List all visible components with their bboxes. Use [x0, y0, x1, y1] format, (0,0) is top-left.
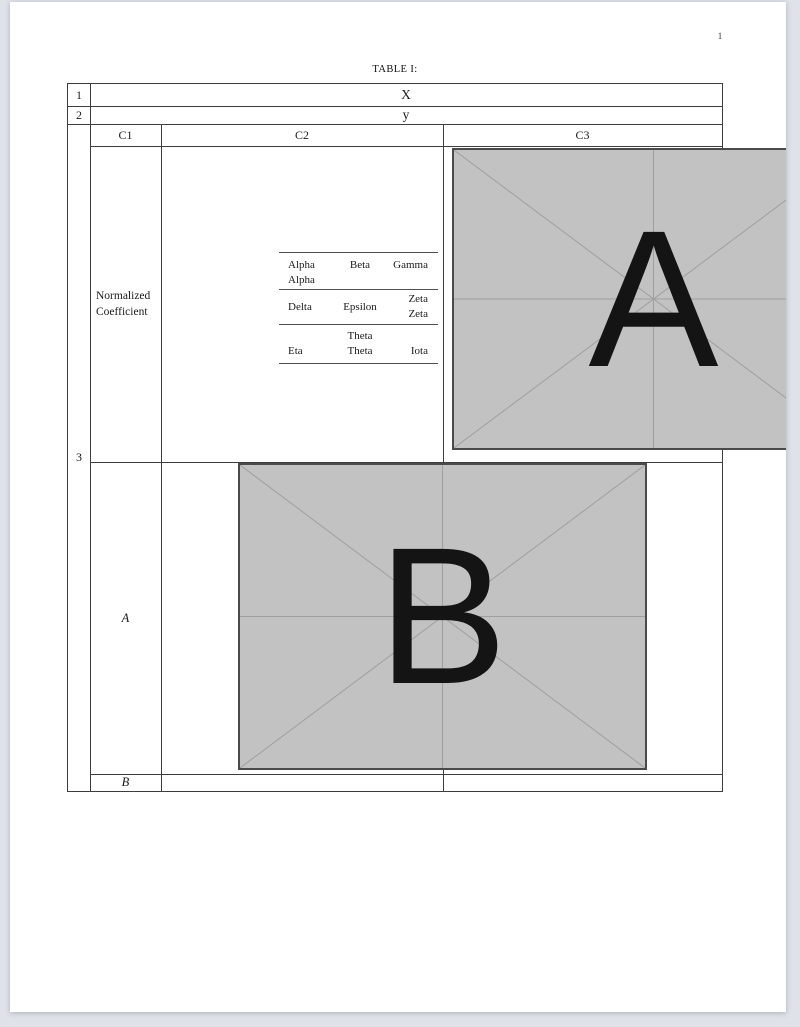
nested-table-row: Delta Epsilon Zeta Zeta	[279, 290, 438, 325]
nested-cell-line: Gamma	[393, 259, 428, 271]
header-c1: C1	[90, 124, 161, 146]
nested-cell-line: Theta	[331, 344, 389, 359]
page-number: 1	[710, 31, 730, 41]
nested-cell: Theta Theta	[331, 329, 389, 359]
row1-value-cell: X	[90, 84, 722, 106]
header-c2: C2	[161, 124, 443, 146]
nested-table: Alpha Alpha Beta Gamma Delta Epsil	[279, 252, 438, 364]
nested-cell-line: Delta	[288, 301, 312, 313]
row2-value-cell: y	[90, 106, 722, 124]
image-placeholder-b: B	[238, 463, 647, 770]
normalized-coefficient-line2: Coefficient	[96, 304, 148, 320]
nested-table-row: Alpha Alpha Beta Gamma	[279, 253, 438, 290]
nested-cell-line: Alpha	[288, 258, 331, 273]
nested-cell-line: Theta	[331, 329, 389, 344]
nested-cell-line: Eta	[288, 345, 303, 357]
nested-cell: Iota	[389, 344, 438, 359]
nested-cell: Zeta Zeta	[389, 292, 438, 322]
grid-line-c1-c2-divider	[161, 124, 162, 791]
nested-cell: Epsilon	[331, 300, 389, 315]
placeholder-letter-b: B	[377, 519, 507, 714]
nested-cell-line: Alpha	[288, 273, 331, 288]
nested-cell-line: Iota	[411, 345, 428, 357]
viewer-canvas: 1 TABLE I: 1 X 2 y 3 C1 C2 C3	[0, 0, 800, 1027]
row3-number-cell: 3	[68, 124, 90, 791]
nested-table-row: Eta Theta Theta Iota	[279, 325, 438, 364]
nested-cell: Beta	[331, 258, 389, 273]
row1-number-cell: 1	[68, 84, 90, 106]
document-page: 1 TABLE I: 1 X 2 y 3 C1 C2 C3	[10, 2, 786, 1012]
row-b-label-cell: B	[90, 774, 161, 791]
image-placeholder-a: A	[452, 148, 786, 450]
nested-cell: Delta	[279, 300, 331, 315]
normalized-coefficient-line1: Normalized	[96, 288, 150, 304]
nested-cell-line: Epsilon	[343, 301, 377, 313]
nested-cell-line: Beta	[350, 259, 370, 271]
nested-cell: Alpha Alpha	[279, 258, 331, 288]
normalized-coefficient-cell: Normalized Coefficient	[90, 146, 161, 462]
grid-line-header-bottom	[90, 146, 722, 147]
row2-number-cell: 2	[68, 106, 90, 124]
nested-cell-line: Zeta	[389, 292, 428, 307]
placeholder-letter-a: A	[588, 202, 718, 397]
nested-cell: Eta	[279, 344, 331, 359]
table-caption: TABLE I:	[67, 64, 723, 75]
grid-line-rowA-bottom	[90, 774, 722, 775]
nested-cell: Gamma	[389, 258, 438, 273]
row-a-label-cell: A	[90, 462, 161, 774]
header-c3: C3	[443, 124, 722, 146]
nested-cell-line: Zeta	[389, 307, 428, 322]
